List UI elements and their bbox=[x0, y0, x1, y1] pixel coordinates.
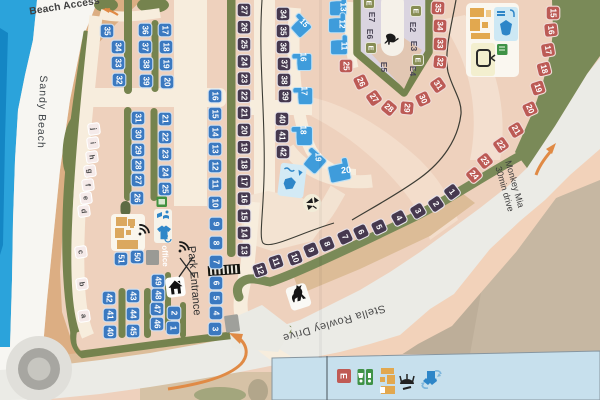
svg-text:41: 41 bbox=[278, 131, 287, 141]
svg-text:15: 15 bbox=[549, 8, 558, 18]
svg-text:E3: E3 bbox=[409, 41, 419, 52]
svg-text:50: 50 bbox=[133, 252, 142, 262]
svg-text:35: 35 bbox=[433, 3, 442, 13]
svg-text:4: 4 bbox=[212, 311, 221, 316]
svg-text:11: 11 bbox=[211, 180, 220, 189]
svg-text:35: 35 bbox=[279, 26, 288, 36]
svg-text:34: 34 bbox=[279, 9, 288, 19]
svg-text:34: 34 bbox=[435, 21, 444, 31]
svg-text:40: 40 bbox=[278, 114, 287, 124]
svg-text:26: 26 bbox=[133, 193, 142, 203]
svg-text:18: 18 bbox=[162, 42, 171, 52]
svg-text:36: 36 bbox=[141, 25, 150, 35]
svg-text:40: 40 bbox=[106, 327, 115, 337]
svg-text:31: 31 bbox=[134, 113, 143, 123]
svg-text:10: 10 bbox=[211, 198, 220, 208]
svg-text:27: 27 bbox=[240, 5, 249, 15]
svg-text:E5: E5 bbox=[379, 62, 389, 73]
svg-text:9: 9 bbox=[212, 222, 221, 227]
svg-text:E4: E4 bbox=[408, 66, 418, 77]
svg-text:42: 42 bbox=[279, 147, 288, 157]
svg-text:1: 1 bbox=[169, 326, 178, 331]
svg-text:25: 25 bbox=[240, 40, 249, 50]
svg-text:office: office bbox=[160, 245, 170, 267]
svg-text:29: 29 bbox=[134, 145, 143, 155]
svg-text:24: 24 bbox=[240, 57, 249, 67]
svg-text:49: 49 bbox=[154, 276, 163, 286]
svg-text:26: 26 bbox=[240, 23, 249, 33]
svg-text:20: 20 bbox=[163, 77, 172, 87]
svg-text:39: 39 bbox=[142, 76, 151, 86]
svg-text:47: 47 bbox=[153, 304, 162, 314]
svg-text:51: 51 bbox=[117, 254, 126, 264]
svg-text:Sandy Beach: Sandy Beach bbox=[35, 75, 50, 149]
svg-text:18: 18 bbox=[240, 160, 249, 170]
svg-text:E: E bbox=[412, 8, 421, 13]
svg-text:25: 25 bbox=[161, 184, 170, 194]
svg-text:28: 28 bbox=[134, 160, 143, 170]
svg-text:E: E bbox=[339, 373, 349, 379]
svg-text:16: 16 bbox=[546, 25, 556, 35]
svg-text:19: 19 bbox=[240, 143, 249, 153]
svg-text:32: 32 bbox=[115, 75, 124, 85]
svg-text:42: 42 bbox=[105, 293, 114, 303]
svg-text:38: 38 bbox=[280, 75, 289, 85]
svg-text:35: 35 bbox=[103, 26, 112, 36]
svg-text:17: 17 bbox=[161, 25, 170, 35]
svg-text:11: 11 bbox=[340, 42, 349, 51]
svg-text:20: 20 bbox=[340, 165, 351, 176]
svg-text:23: 23 bbox=[161, 149, 170, 159]
svg-text:E7: E7 bbox=[367, 12, 377, 23]
svg-text:30: 30 bbox=[134, 129, 143, 139]
svg-text:17: 17 bbox=[300, 87, 309, 96]
svg-text:48: 48 bbox=[154, 290, 163, 300]
svg-text:29: 29 bbox=[402, 103, 412, 113]
svg-text:36: 36 bbox=[279, 42, 288, 52]
svg-text:24: 24 bbox=[161, 167, 170, 177]
svg-text:3: 3 bbox=[211, 327, 220, 332]
svg-text:13: 13 bbox=[339, 3, 348, 12]
svg-text:15: 15 bbox=[211, 109, 220, 119]
svg-text:17: 17 bbox=[240, 177, 249, 187]
svg-text:37: 37 bbox=[141, 42, 150, 52]
svg-text:33: 33 bbox=[114, 58, 123, 68]
svg-text:E: E bbox=[365, 0, 374, 5]
svg-text:21: 21 bbox=[161, 114, 170, 124]
svg-text:43: 43 bbox=[129, 291, 138, 301]
svg-text:46: 46 bbox=[153, 319, 162, 329]
svg-text:21: 21 bbox=[240, 108, 249, 118]
svg-text:22: 22 bbox=[240, 91, 249, 101]
svg-text:8: 8 bbox=[212, 241, 221, 246]
svg-text:5: 5 bbox=[212, 296, 221, 301]
svg-text:2: 2 bbox=[170, 311, 179, 316]
svg-text:14: 14 bbox=[211, 127, 220, 137]
svg-text:7: 7 bbox=[212, 260, 221, 265]
svg-text:38: 38 bbox=[142, 59, 151, 69]
svg-text:45: 45 bbox=[129, 326, 138, 336]
svg-text:E: E bbox=[414, 57, 423, 62]
svg-text:6: 6 bbox=[212, 281, 221, 286]
svg-text:33: 33 bbox=[435, 39, 444, 49]
svg-text:12: 12 bbox=[338, 20, 347, 29]
svg-text:22: 22 bbox=[161, 132, 170, 142]
svg-text:15: 15 bbox=[240, 211, 249, 221]
svg-text:37: 37 bbox=[280, 59, 289, 69]
svg-text:E: E bbox=[367, 45, 376, 50]
svg-text:41: 41 bbox=[106, 310, 115, 320]
svg-text:20: 20 bbox=[240, 125, 249, 135]
svg-text:13: 13 bbox=[211, 144, 220, 154]
svg-text:27: 27 bbox=[134, 175, 143, 185]
svg-text:23: 23 bbox=[240, 74, 249, 84]
svg-text:25: 25 bbox=[342, 61, 351, 71]
svg-text:13: 13 bbox=[240, 246, 249, 256]
svg-text:16: 16 bbox=[299, 53, 308, 62]
svg-text:18: 18 bbox=[299, 126, 308, 135]
svg-text:12: 12 bbox=[211, 161, 220, 171]
svg-text:E6: E6 bbox=[365, 29, 375, 40]
svg-text:16: 16 bbox=[211, 91, 220, 101]
svg-text:32: 32 bbox=[435, 57, 445, 67]
svg-text:19: 19 bbox=[162, 59, 171, 69]
svg-text:E2: E2 bbox=[408, 22, 418, 33]
svg-text:16: 16 bbox=[240, 194, 249, 204]
svg-text:39: 39 bbox=[281, 91, 290, 101]
svg-text:44: 44 bbox=[129, 309, 138, 319]
svg-text:14: 14 bbox=[240, 228, 249, 238]
svg-text:34: 34 bbox=[114, 42, 123, 52]
